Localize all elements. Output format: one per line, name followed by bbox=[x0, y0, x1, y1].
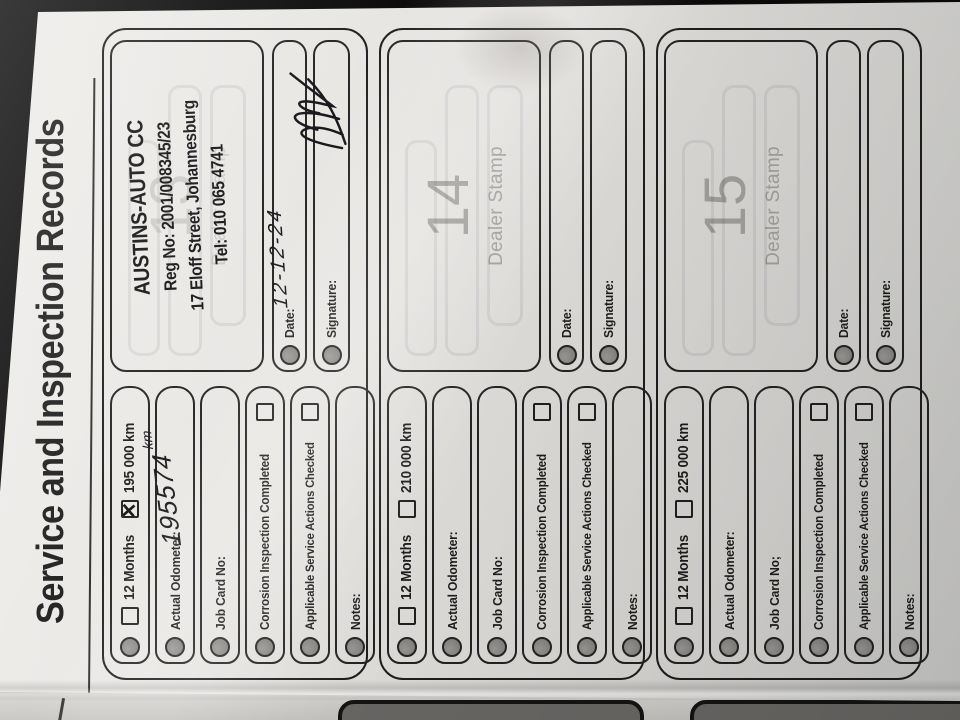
job-card-row: Job Card No: bbox=[200, 386, 240, 664]
dot-icon bbox=[442, 637, 462, 657]
months-checkbox-icon bbox=[121, 607, 139, 625]
next-page-record-outline bbox=[338, 700, 644, 720]
odometer-row: Actual Odometer: bbox=[709, 386, 749, 664]
dot-icon bbox=[300, 637, 320, 657]
service-actions-row: Applicable Service Actions Checked bbox=[844, 386, 884, 664]
dot-icon bbox=[809, 637, 829, 657]
signature-row: Signature: bbox=[313, 40, 350, 372]
dealer-stamp-box: 15 Dealer Stamp bbox=[664, 40, 818, 372]
service-actions-checkbox-icon bbox=[578, 403, 596, 421]
months-label: 12 Months bbox=[399, 535, 415, 600]
months-checkbox-icon bbox=[675, 607, 693, 625]
show-through-ghost bbox=[764, 85, 800, 326]
signature-row: Signature: bbox=[867, 40, 904, 372]
dot-icon bbox=[345, 637, 365, 657]
dot-icon bbox=[599, 345, 619, 365]
job-card-label: Job Card No; bbox=[767, 556, 782, 630]
km-label: 195 000 km bbox=[122, 423, 138, 493]
show-through-ghost bbox=[722, 85, 756, 356]
signature-label: Signature: bbox=[878, 280, 893, 338]
job-card-label: Job Card No: bbox=[213, 556, 228, 630]
interval-row: 12 Months 225 000 km bbox=[664, 386, 704, 664]
km-label: 225 000 km bbox=[676, 423, 692, 493]
odometer-row: Actual Odometer: bbox=[432, 386, 472, 664]
dot-icon bbox=[899, 637, 919, 657]
stamp-column: 14 Dealer Stamp Date: Signature: bbox=[387, 40, 627, 372]
date-label: Date: bbox=[836, 309, 851, 338]
stamp-column: 15 Dealer Stamp Date: Signature: bbox=[664, 40, 904, 372]
dot-icon bbox=[487, 637, 507, 657]
dot-icon bbox=[622, 637, 642, 657]
job-card-row: Job Card No: bbox=[477, 386, 517, 664]
service-actions-row: Applicable Service Actions Checked bbox=[290, 386, 330, 664]
dot-icon bbox=[834, 345, 854, 365]
months-label: 12 Months bbox=[122, 535, 138, 600]
dot-icon bbox=[210, 637, 230, 657]
notes-label: Notes: bbox=[902, 593, 917, 630]
km-checkbox-icon bbox=[675, 500, 693, 518]
months-label: 12 Months bbox=[676, 535, 692, 600]
signature-row: Signature: bbox=[590, 40, 627, 372]
corrosion-row: Corrosion Inspection Completed bbox=[245, 386, 285, 664]
records-list: 12 Months 195 000 km Actual Odometer: 19… bbox=[102, 28, 922, 680]
notes-row: Notes: bbox=[612, 386, 652, 664]
signature-scribble bbox=[280, 53, 353, 163]
dot-icon bbox=[532, 637, 552, 657]
months-checkbox-icon bbox=[398, 607, 416, 625]
job-card-row: Job Card No; bbox=[754, 386, 794, 664]
service-actions-row: Applicable Service Actions Checked bbox=[567, 386, 607, 664]
document-content: Service and Inspection Records 12 Months… bbox=[0, 0, 960, 690]
notes-label: Notes: bbox=[625, 593, 640, 630]
dot-icon bbox=[764, 637, 784, 657]
stamp-column: 13 Dealer Stamp AUSTINS-AUTO CC Reg No: … bbox=[110, 40, 350, 372]
odometer-label: Actual Odometer: bbox=[722, 532, 737, 630]
service-actions-checkbox-icon bbox=[855, 403, 873, 421]
km-checkbox-icon bbox=[121, 500, 139, 518]
dot-icon bbox=[854, 637, 874, 657]
dot-icon bbox=[120, 637, 140, 657]
date-label: Date: bbox=[282, 309, 297, 338]
show-through-ghost bbox=[682, 140, 714, 356]
notes-row: Notes: bbox=[889, 386, 929, 664]
show-through-ghost bbox=[405, 140, 437, 356]
interval-row: 12 Months 195 000 km bbox=[110, 386, 150, 664]
service-actions-label: Applicable Service Actions Checked bbox=[857, 442, 871, 630]
record-fields: 12 Months 210 000 km Actual Odometer: Jo… bbox=[387, 386, 657, 664]
job-card-label: Job Card No: bbox=[490, 556, 505, 630]
next-page-rule bbox=[58, 698, 65, 720]
signature-label: Signature: bbox=[601, 280, 616, 338]
corrosion-label: Corrosion Inspection Completed bbox=[535, 454, 549, 630]
service-record: 12 Months 195 000 km Actual Odometer: 19… bbox=[102, 28, 368, 680]
show-through-ghost bbox=[487, 85, 523, 326]
date-label: Date: bbox=[559, 309, 574, 338]
dot-icon bbox=[674, 637, 694, 657]
dot-icon bbox=[255, 637, 275, 657]
next-page-record-outline bbox=[690, 700, 960, 720]
corrosion-checkbox-icon bbox=[533, 403, 551, 421]
dealer-stamp-imprint: AUSTINS-AUTO CC Reg No: 2001/008345/23 1… bbox=[119, 40, 237, 372]
title-divider bbox=[88, 78, 95, 696]
show-through-ghost bbox=[445, 85, 479, 356]
corrosion-label: Corrosion Inspection Completed bbox=[812, 454, 826, 630]
corrosion-row: Corrosion Inspection Completed bbox=[799, 386, 839, 664]
dot-icon bbox=[280, 345, 300, 365]
service-record: 12 Months 210 000 km Actual Odometer: Jo… bbox=[379, 28, 645, 680]
km-label: 210 000 km bbox=[399, 423, 415, 493]
dot-icon bbox=[876, 345, 896, 365]
service-actions-label: Applicable Service Actions Checked bbox=[303, 442, 317, 630]
notes-label: Notes: bbox=[348, 593, 363, 630]
dot-icon bbox=[719, 637, 739, 657]
record-fields: 12 Months 195 000 km Actual Odometer: 19… bbox=[110, 386, 380, 664]
dealer-stamp-box: 14 Dealer Stamp bbox=[387, 40, 541, 372]
corrosion-label: Corrosion Inspection Completed bbox=[258, 454, 272, 630]
photo-frame: Service and Inspection Records 12 Months… bbox=[0, 0, 960, 720]
interval-row: 12 Months 210 000 km bbox=[387, 386, 427, 664]
date-handwriting: 12-12-24 bbox=[263, 207, 293, 309]
dot-icon bbox=[322, 345, 342, 365]
date-row: Date: bbox=[826, 40, 861, 372]
record-fields: 12 Months 225 000 km Actual Odometer: Jo… bbox=[664, 386, 934, 664]
service-book-page: Service and Inspection Records 12 Months… bbox=[0, 0, 960, 720]
dot-icon bbox=[397, 637, 417, 657]
page-title: Service and Inspection Records bbox=[30, 119, 73, 624]
signature-label: Signature: bbox=[324, 280, 339, 338]
dot-icon bbox=[557, 345, 577, 365]
odometer-label: Actual Odometer: bbox=[445, 532, 460, 630]
dot-icon bbox=[577, 637, 597, 657]
odometer-row: Actual Odometer: 195574km bbox=[155, 386, 195, 664]
notes-row: Notes: bbox=[335, 386, 375, 664]
corrosion-checkbox-icon bbox=[256, 403, 274, 421]
service-actions-label: Applicable Service Actions Checked bbox=[580, 442, 594, 630]
service-actions-checkbox-icon bbox=[301, 403, 319, 421]
date-row: Date: bbox=[549, 40, 584, 372]
km-checkbox-icon bbox=[398, 500, 416, 518]
odometer-label: Actual Odometer: bbox=[168, 532, 183, 630]
corrosion-row: Corrosion Inspection Completed bbox=[522, 386, 562, 664]
dealer-stamp-box: 13 Dealer Stamp AUSTINS-AUTO CC Reg No: … bbox=[110, 40, 264, 372]
dot-icon bbox=[165, 637, 185, 657]
corrosion-checkbox-icon bbox=[810, 403, 828, 421]
service-record: 12 Months 225 000 km Actual Odometer: Jo… bbox=[656, 28, 922, 680]
